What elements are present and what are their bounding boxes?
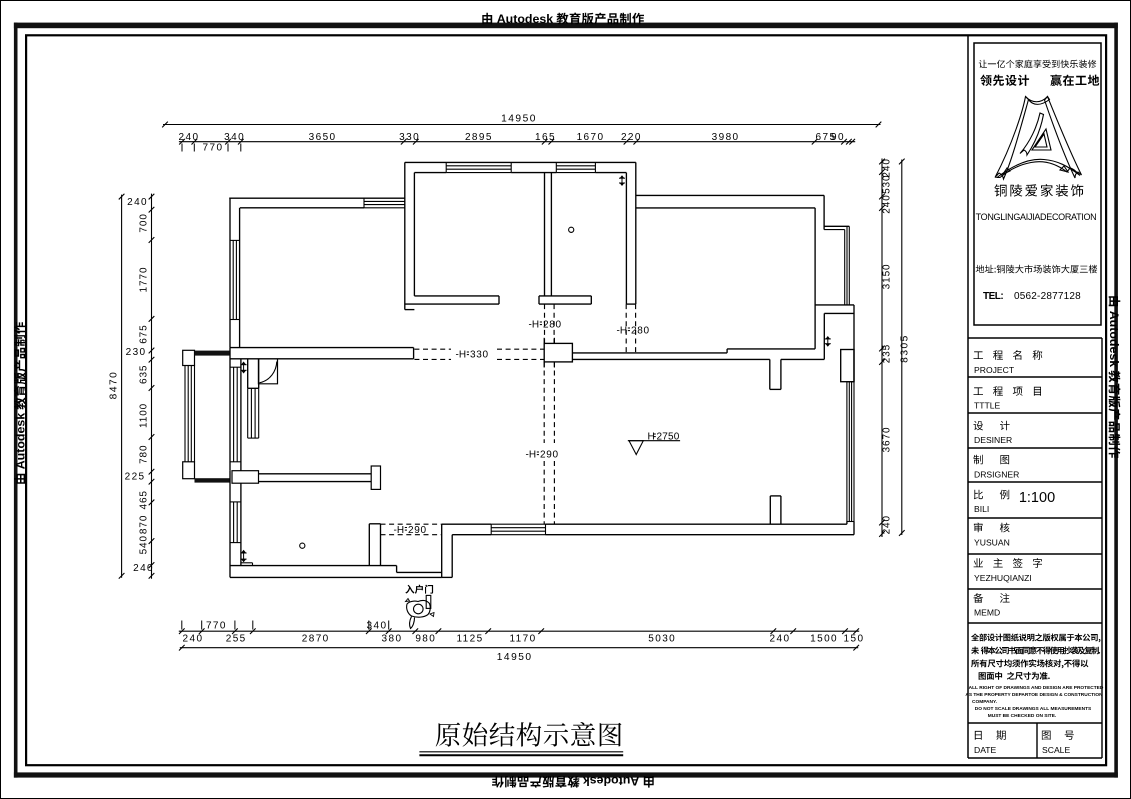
svg-text:YEZHUQIANZI: YEZHUQIANZI bbox=[974, 573, 1032, 583]
svg-text:14950: 14950 bbox=[497, 652, 533, 663]
svg-text:240: 240 bbox=[127, 197, 148, 208]
svg-text:AS THE PROPERTY DEPARTOE DESIG: AS THE PROPERTY DEPARTOE DESIGN & CONSTR… bbox=[965, 692, 1103, 698]
svg-text:240: 240 bbox=[183, 633, 204, 644]
svg-text:MEMD: MEMD bbox=[974, 608, 1000, 618]
svg-text:-H: -H bbox=[617, 326, 628, 337]
svg-text:3150: 3150 bbox=[882, 263, 893, 289]
svg-text:150: 150 bbox=[844, 633, 865, 644]
svg-text:1170: 1170 bbox=[509, 633, 536, 644]
svg-text:700: 700 bbox=[139, 213, 150, 232]
svg-text:1500: 1500 bbox=[810, 633, 838, 644]
svg-text:DATE: DATE bbox=[974, 745, 997, 755]
svg-text:290: 290 bbox=[408, 525, 427, 536]
svg-text:770: 770 bbox=[203, 143, 224, 154]
svg-text:90: 90 bbox=[831, 132, 845, 143]
svg-text:DESINER: DESINER bbox=[974, 435, 1012, 445]
svg-text:DRSIGNER: DRSIGNER bbox=[974, 470, 1019, 480]
svg-text:-H: -H bbox=[526, 449, 537, 460]
svg-text:1670: 1670 bbox=[577, 132, 605, 143]
svg-text:230: 230 bbox=[126, 347, 147, 358]
svg-text:255: 255 bbox=[226, 633, 247, 644]
svg-text:2750: 2750 bbox=[657, 431, 680, 442]
svg-text:BILI: BILI bbox=[974, 504, 989, 514]
svg-text:2870: 2870 bbox=[302, 633, 330, 644]
svg-text:240: 240 bbox=[770, 633, 791, 644]
svg-text:770: 770 bbox=[206, 620, 227, 631]
svg-text:-H: -H bbox=[394, 525, 405, 536]
svg-text:240: 240 bbox=[133, 563, 154, 574]
svg-text:-H: -H bbox=[529, 320, 540, 331]
svg-text:280: 280 bbox=[543, 320, 562, 331]
svg-text:240: 240 bbox=[179, 132, 200, 143]
svg-text:980: 980 bbox=[415, 633, 436, 644]
svg-text:TEL:: TEL: bbox=[983, 291, 1003, 302]
svg-text:PROJECT: PROJECT bbox=[974, 365, 1015, 375]
svg-text:340: 340 bbox=[224, 132, 245, 143]
svg-text:380: 380 bbox=[382, 633, 403, 644]
svg-text:MUST BE CHECKED ON SITE.: MUST BE CHECKED ON SITE. bbox=[988, 713, 1057, 719]
svg-text:14950: 14950 bbox=[501, 113, 537, 124]
svg-text:1125: 1125 bbox=[456, 633, 483, 644]
svg-text:SCALE: SCALE bbox=[1042, 745, 1070, 755]
svg-text:COMPANY.: COMPANY. bbox=[972, 699, 997, 705]
svg-text:-H: -H bbox=[456, 349, 467, 360]
svg-text:DO NOT SCALE DRAWINGS ALL MEAS: DO NOT SCALE DRAWINGS ALL MEASUREMENTS bbox=[975, 706, 1092, 712]
svg-text:530: 530 bbox=[882, 175, 893, 194]
svg-text:2895: 2895 bbox=[465, 132, 493, 143]
svg-text:280: 280 bbox=[631, 326, 650, 337]
svg-text:165: 165 bbox=[535, 132, 556, 143]
svg-text:0562-2877128: 0562-2877128 bbox=[1014, 291, 1081, 302]
svg-text:235: 235 bbox=[882, 344, 893, 363]
svg-text:220: 220 bbox=[621, 132, 642, 143]
svg-text:330: 330 bbox=[399, 132, 420, 143]
svg-text:3650: 3650 bbox=[309, 132, 337, 143]
svg-text:TTTLE: TTTLE bbox=[974, 401, 1001, 411]
svg-text:635: 635 bbox=[139, 365, 150, 384]
svg-text:240: 240 bbox=[882, 515, 893, 534]
svg-text:1100: 1100 bbox=[139, 403, 150, 428]
svg-text:870: 870 bbox=[139, 515, 150, 534]
svg-text:465: 465 bbox=[139, 490, 150, 509]
svg-text:290: 290 bbox=[540, 449, 559, 460]
svg-text:675: 675 bbox=[139, 324, 150, 343]
svg-text:780: 780 bbox=[139, 445, 150, 464]
svg-text:ALL RIGHT OF DRAWINGS AND DESI: ALL RIGHT OF DRAWINGS AND DESIGN ARE PRO… bbox=[969, 685, 1104, 691]
svg-text:8470: 8470 bbox=[109, 371, 120, 400]
svg-text:1770: 1770 bbox=[139, 267, 150, 293]
svg-text:YUSUAN: YUSUAN bbox=[974, 538, 1010, 548]
svg-text:TONGLINGAIJIADECORATION: TONGLINGAIJIADECORATION bbox=[976, 212, 1097, 222]
svg-text:8305: 8305 bbox=[900, 334, 911, 363]
svg-text:225: 225 bbox=[125, 471, 146, 482]
svg-text:240: 240 bbox=[882, 194, 893, 213]
svg-text:1:100: 1:100 bbox=[1019, 490, 1055, 506]
svg-text:330: 330 bbox=[470, 349, 489, 360]
svg-text:3670: 3670 bbox=[882, 427, 893, 453]
svg-text:540: 540 bbox=[139, 535, 150, 554]
svg-text:5030: 5030 bbox=[648, 633, 676, 644]
svg-text:340: 340 bbox=[367, 620, 388, 631]
svg-text:3980: 3980 bbox=[712, 132, 740, 143]
